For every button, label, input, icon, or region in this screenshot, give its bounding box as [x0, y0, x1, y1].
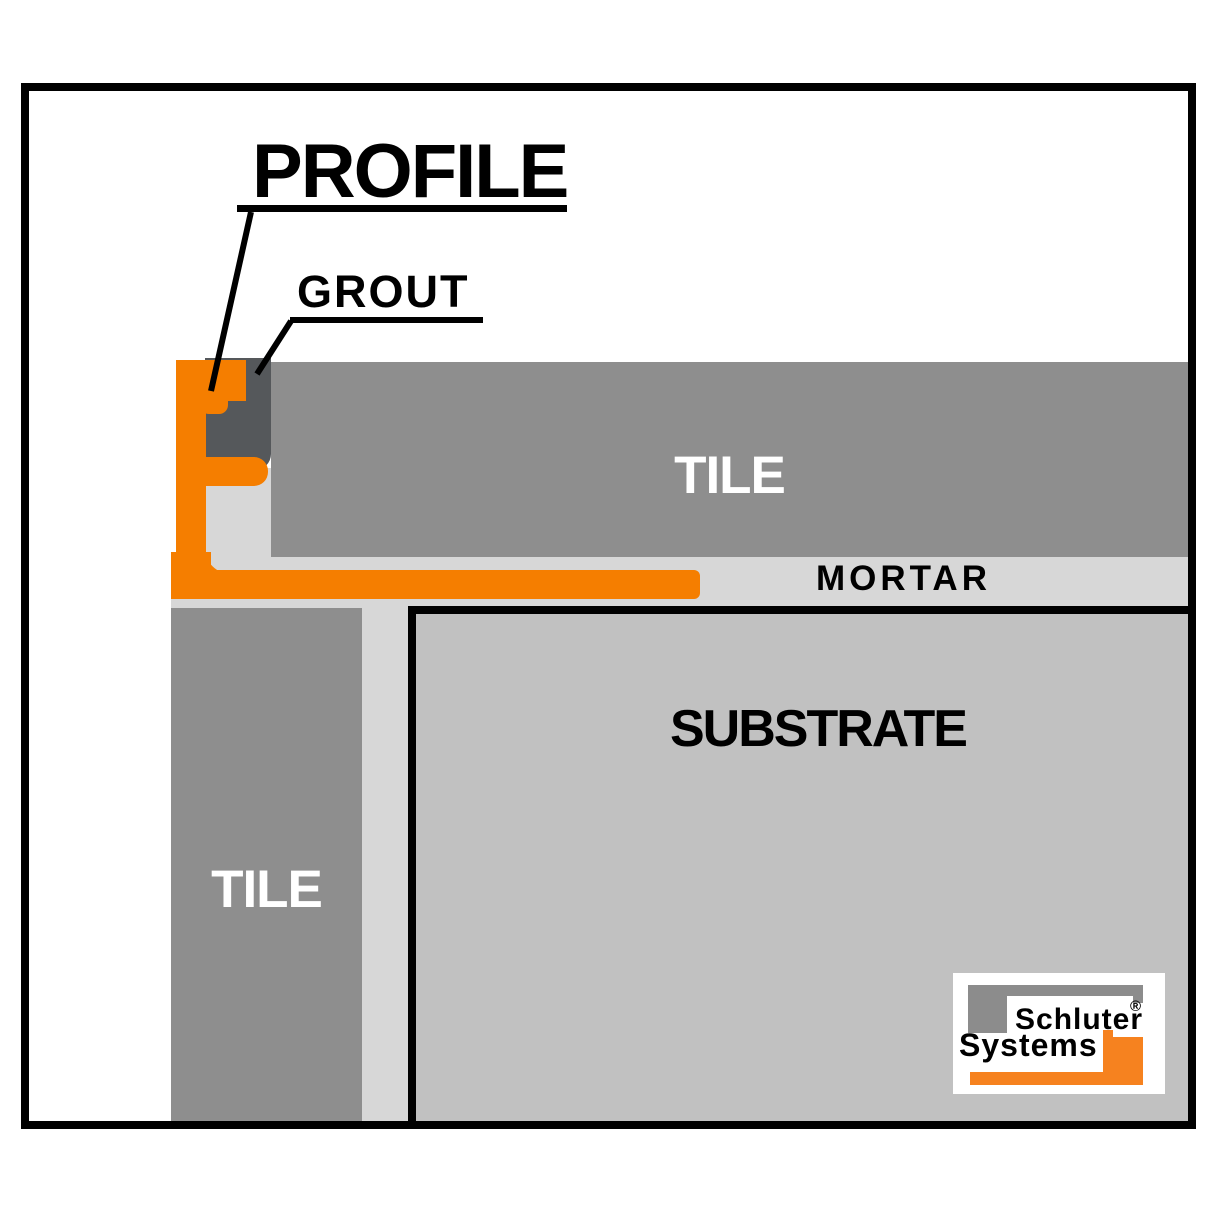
diagram-border-frame	[21, 83, 1196, 1129]
cross-section-diagram: PROFILE GROUT TILE MORTAR SUBSTRATE TILE…	[0, 0, 1213, 1213]
